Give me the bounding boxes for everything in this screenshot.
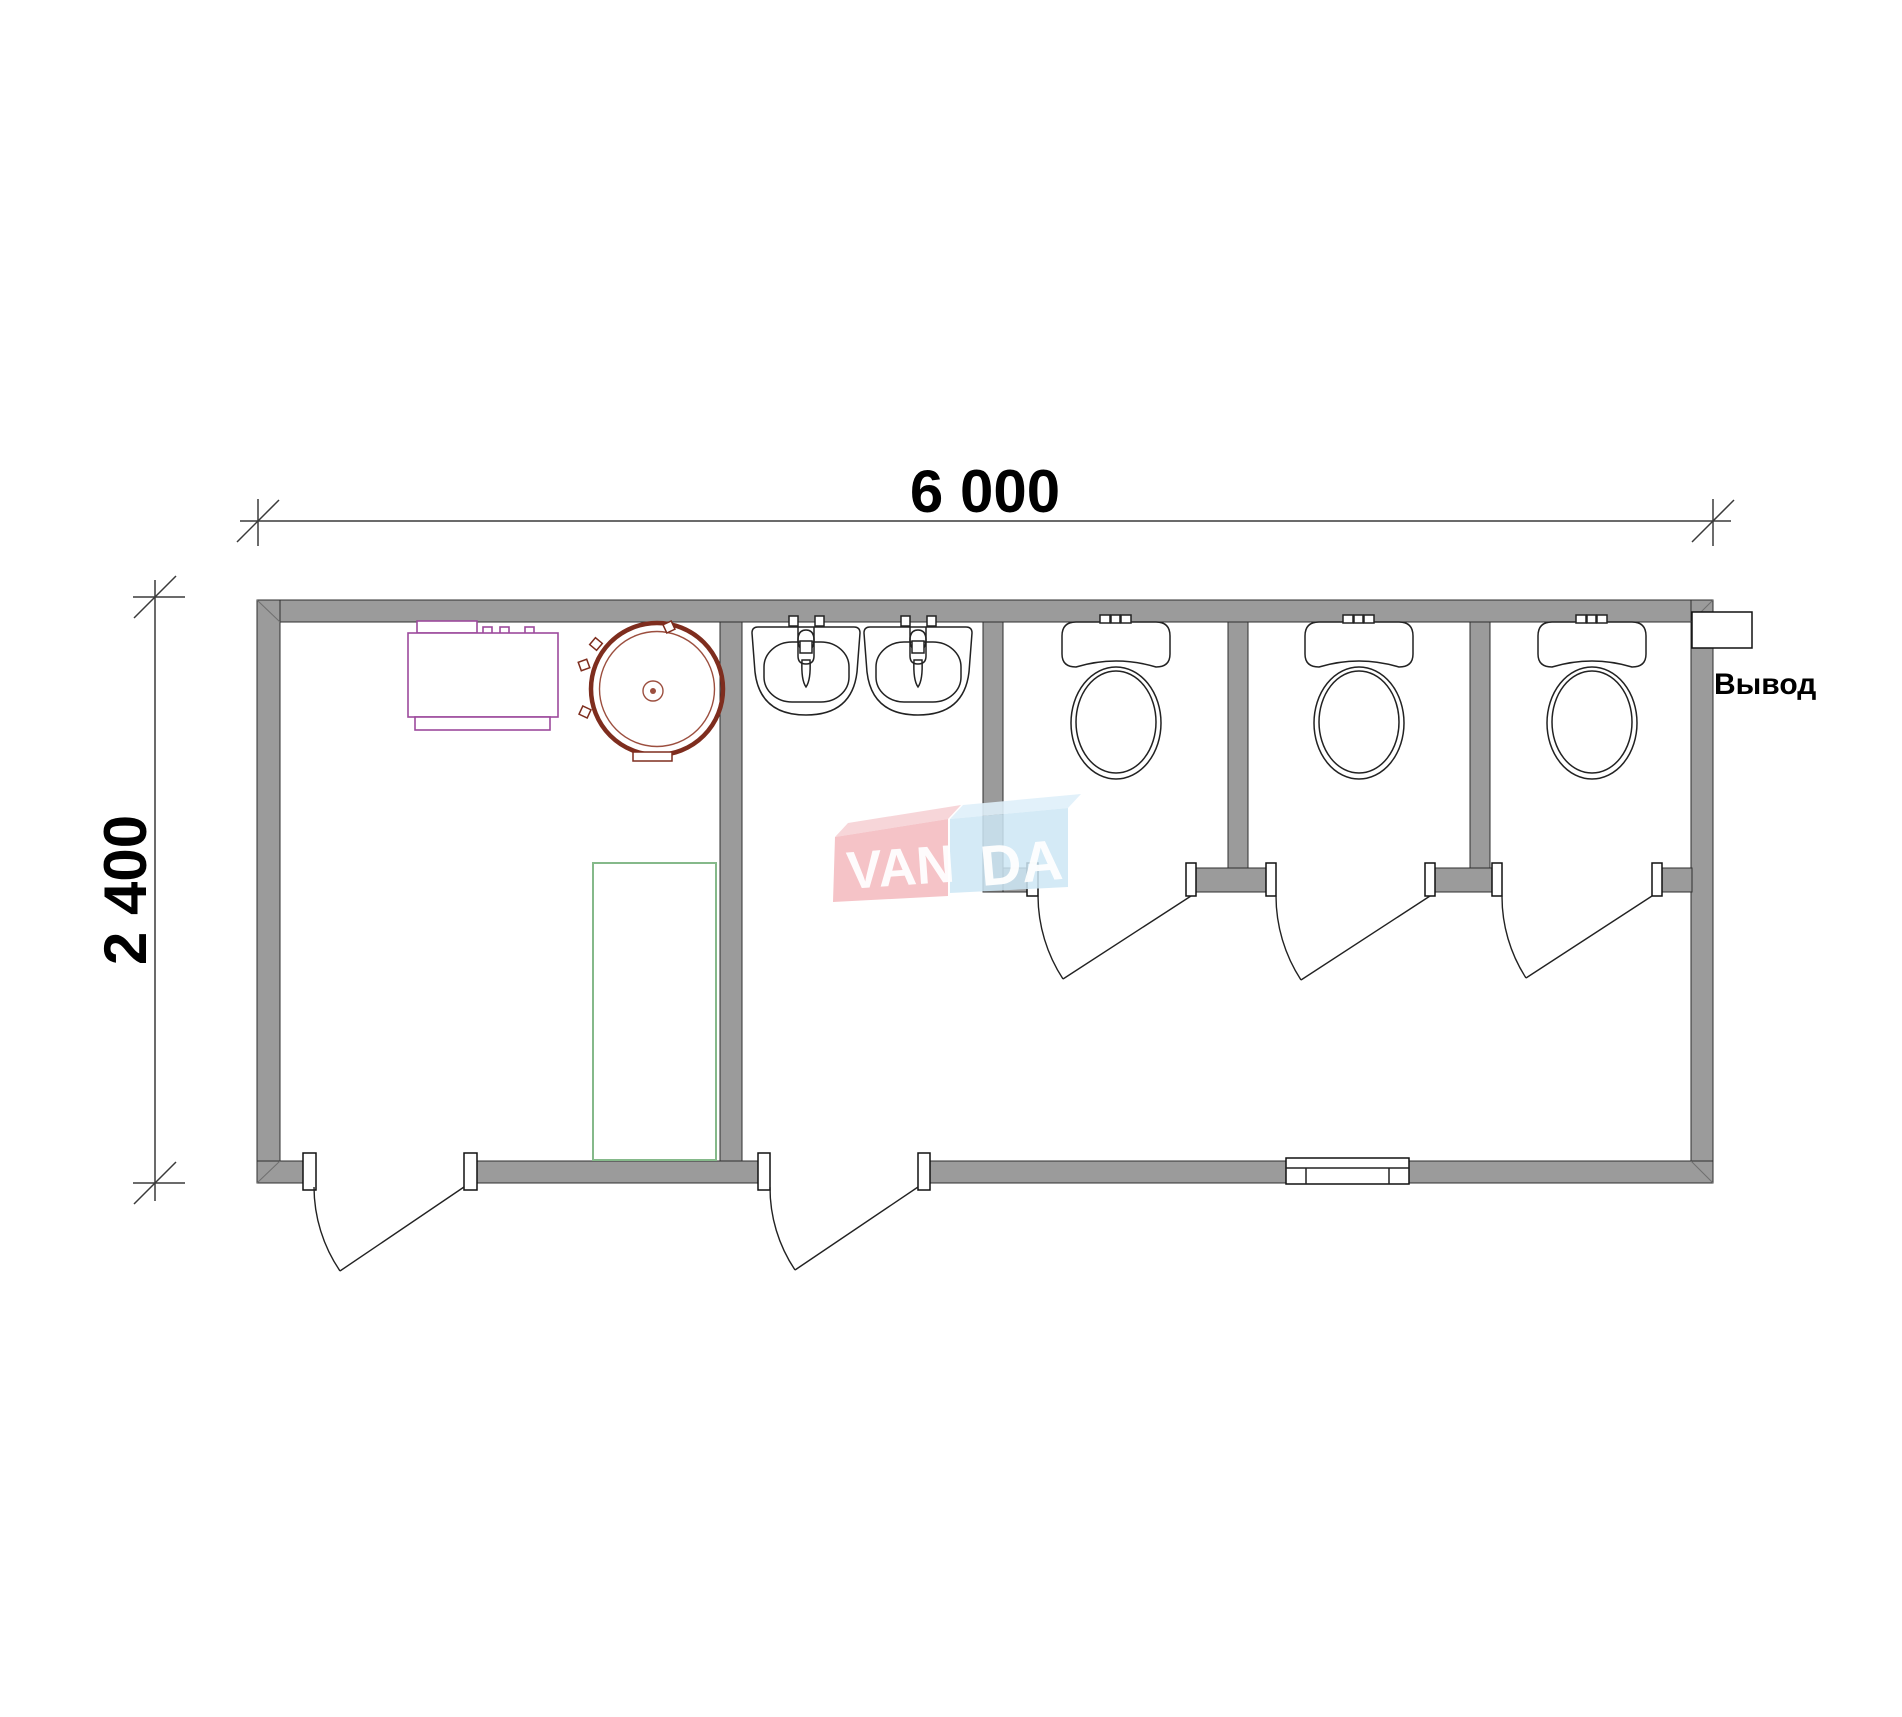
watermark-text-van: VAN (845, 835, 957, 901)
stall-front-stub-2 (1662, 868, 1692, 892)
stall-partition-1 (1228, 622, 1248, 868)
stall-front-bar-2 (1435, 868, 1492, 892)
toilet-2 (1305, 615, 1413, 779)
door-jambs (303, 863, 1662, 1190)
stall-partition-2 (1470, 622, 1490, 868)
wall-bottom-seg2 (477, 1161, 758, 1183)
stall-door-3 (1502, 896, 1652, 978)
stall-door-2 (1276, 896, 1430, 980)
wall-bottom-seg1 (257, 1161, 303, 1183)
width-dimension-label: 6 000 (910, 458, 1060, 525)
height-dimension-label: 2 400 (92, 815, 159, 965)
washbasin-2 (864, 616, 972, 715)
stall-front-bar-1 (1196, 868, 1266, 892)
doors (314, 896, 1652, 1271)
stall-door-1 (1038, 896, 1191, 979)
toilet-1 (1062, 615, 1170, 779)
entrance-door-washroom (770, 1187, 918, 1270)
wall-top (257, 600, 1713, 622)
round-water-tank (578, 621, 723, 761)
floor-plan-page: 6 000 2 400 (0, 0, 1902, 1717)
boiler-unit (408, 621, 558, 730)
window-vent (1286, 1158, 1409, 1184)
wall-right (1691, 600, 1713, 1183)
dimension-top: 6 000 (237, 458, 1734, 546)
dimension-left: 2 400 (92, 576, 185, 1204)
toilet-3 (1538, 615, 1646, 779)
watermark-text-da: DA (978, 828, 1066, 899)
outlet-box (1692, 612, 1752, 648)
vanda-watermark: VAN DA (833, 794, 1081, 902)
shower-tray (593, 863, 716, 1160)
outlet-label: Вывод (1714, 668, 1816, 701)
entrance-door-room1 (314, 1187, 464, 1271)
washbasin-1 (752, 616, 860, 715)
wall-left (257, 600, 280, 1183)
floor-plan-drawing: 6 000 2 400 (0, 0, 1902, 1717)
